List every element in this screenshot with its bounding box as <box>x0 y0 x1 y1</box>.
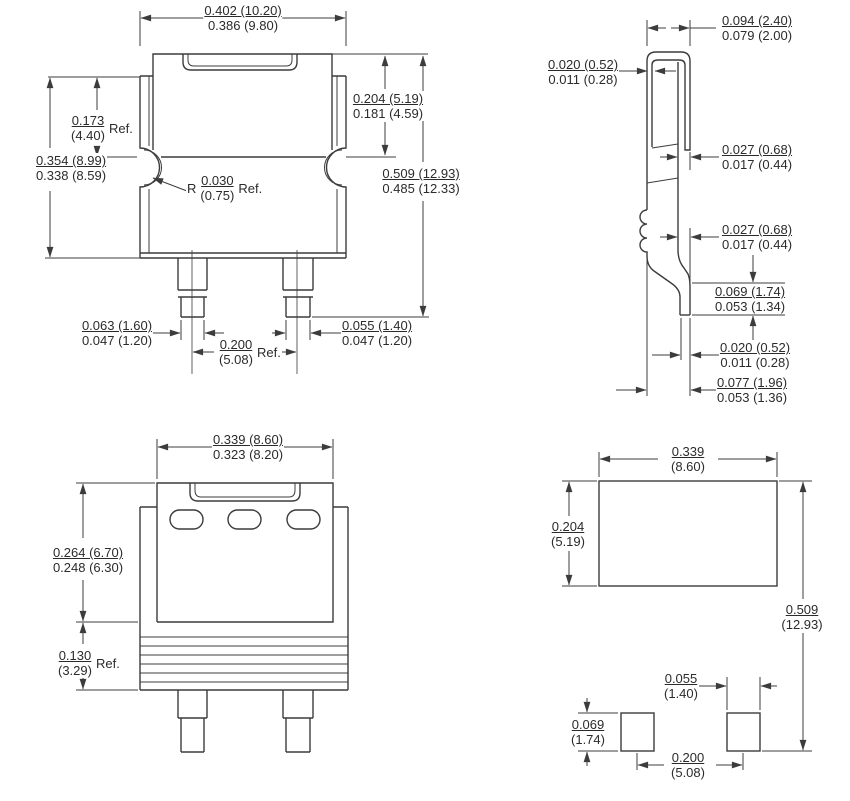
dim-land-lead-pad-height: 0.069(1.74) <box>570 717 606 747</box>
side-dim-top-ext <box>647 20 716 46</box>
back-slot-3 <box>287 510 320 529</box>
back-view <box>76 439 348 752</box>
front-body-right <box>327 76 347 258</box>
back-lead-1 <box>178 690 207 752</box>
back-slot-1 <box>170 510 203 529</box>
side-tab-wrap <box>647 52 690 210</box>
back-lead-2 <box>283 690 313 752</box>
dim-land-overall-length: 0.509(12.93) <box>780 602 823 632</box>
package-outline-drawing: 0.402 (10.20)0.386 (9.80) 0.173(4.40) Re… <box>0 0 850 801</box>
dim-land-lead-pad-pitch: 0.200(5.08) <box>670 750 706 780</box>
front-body-bottom <box>140 253 346 258</box>
front-lead-1 <box>178 258 207 317</box>
dim-land-lead-pad-width: 0.055(1.40) <box>663 671 699 701</box>
dim-back-lower-height-ref: 0.130(3.29) Ref. <box>57 648 121 678</box>
side-dim-footthk-ext <box>681 318 690 396</box>
dim-front-tab-height-ref: 0.173(4.40) Ref. <box>70 113 134 143</box>
front-body-left <box>140 76 160 258</box>
dim-land-pad-width: 0.339(8.60) <box>670 444 706 474</box>
land-lead-pad-2 <box>727 713 760 751</box>
back-body-outline <box>140 507 348 690</box>
front-body-inner-lines <box>149 76 337 253</box>
front-tab-outline <box>153 54 332 76</box>
dim-land-pad-height: 0.204(5.19) <box>550 519 586 549</box>
dim-back-tab-width: 0.339 (8.60)0.323 (8.20) <box>212 432 284 462</box>
front-tab-groove-outer <box>183 54 297 70</box>
dim-front-notch-radius: R 0.030(0.75) Ref. <box>186 173 263 203</box>
dim-side-lead-thickness: 0.027 (0.68)0.017 (0.44) <box>721 222 793 252</box>
back-tab-groove-outer <box>190 483 300 501</box>
dim-front-lead-pitch: 0.200(5.08) Ref. <box>218 337 282 367</box>
dim-front-tab-exposed-height: 0.204 (5.19)0.181 (4.59) <box>352 91 424 121</box>
side-bumps <box>640 210 647 256</box>
dim-side-tab-flange-thickness: 0.020 (0.52)0.011 (0.28) <box>547 57 619 87</box>
dim-front-body-width: 0.402 (10.20)0.386 (9.80) <box>203 3 282 33</box>
land-dim-padw-ext <box>727 677 760 710</box>
dim-side-tab-thickness: 0.027 (0.68)0.017 (0.44) <box>721 142 793 172</box>
back-heatsink-stripes <box>140 637 348 682</box>
back-tab-groove-inner <box>195 483 295 497</box>
front-tab-sides <box>153 76 332 150</box>
dim-side-tab-top-width: 0.094 (2.40)0.079 (2.00) <box>721 13 793 43</box>
back-slot-2 <box>228 510 261 529</box>
dim-front-overall-height: 0.509 (12.93)0.485 (12.33) <box>381 166 460 196</box>
front-dim-tip-ext <box>181 320 204 340</box>
dim-front-lead-tip-width: 0.063 (1.60)0.047 (1.20) <box>81 318 153 348</box>
dim-back-tab-height: 0.264 (6.70)0.248 (6.30) <box>52 545 124 575</box>
back-tab-outline <box>157 483 333 622</box>
front-tab-groove-inner <box>188 54 292 66</box>
front-lead-2 <box>283 258 313 317</box>
dim-front-lead-width: 0.055 (1.40)0.047 (1.20) <box>341 318 413 348</box>
side-mold-lines <box>647 144 678 183</box>
dim-front-body-height: 0.354 (8.99)0.338 (8.59) <box>35 153 107 183</box>
land-tab-pad <box>599 481 777 586</box>
dim-side-lead-foot-height: 0.069 (1.74)0.053 (1.34) <box>714 284 786 314</box>
side-lead-back <box>647 256 680 315</box>
dim-side-lead-foot-thickness: 0.020 (0.52)0.011 (0.28) <box>719 340 791 370</box>
dim-side-lead-setback: 0.077 (1.96)0.053 (1.36) <box>716 375 788 405</box>
front-radius-leader <box>153 178 187 191</box>
front-dim-lead-ext <box>286 320 310 340</box>
land-lead-pad-1 <box>621 713 654 751</box>
